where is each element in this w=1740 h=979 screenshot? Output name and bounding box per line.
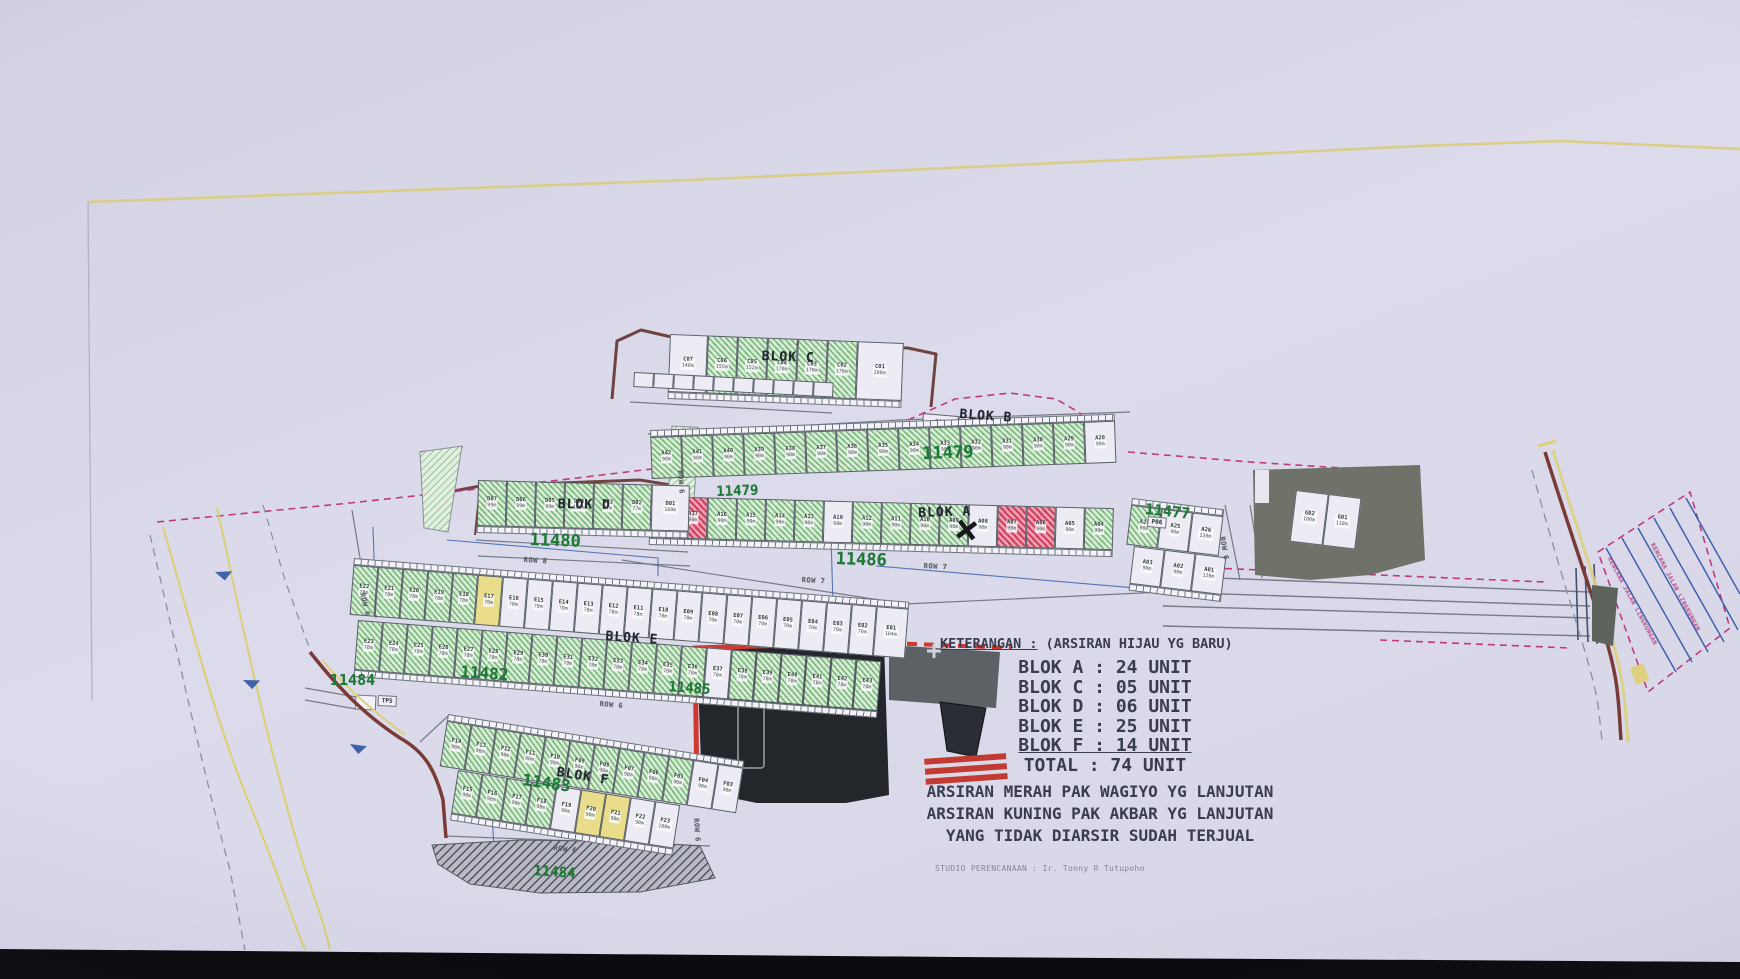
unit-label: D0799m — [486, 498, 498, 510]
unit-A04: A0490m — [1084, 507, 1114, 550]
parcel-number: 11484 — [330, 671, 375, 689]
unit-label: D01160m — [663, 502, 677, 514]
legend-note-line: YANG TIDAK DIARSIR SUDAH TERJUAL — [860, 825, 1340, 847]
unit-label: A1690m — [716, 513, 728, 525]
unit-label: F1790m — [510, 795, 524, 808]
unit-label: E3678m — [686, 665, 699, 677]
unit-A37: A3790m — [805, 431, 837, 474]
unit-label: E1478m — [557, 600, 570, 612]
unit-label: C05152m — [745, 360, 759, 372]
legend-row: BLOK C : 05 UNIT — [940, 678, 1270, 698]
unit-label: E3478m — [636, 661, 649, 673]
unit-label: C02170m — [835, 364, 849, 376]
unit-label: A0290m — [1171, 564, 1184, 577]
unit-label: C07148m — [681, 358, 695, 370]
unit-label: F1390m — [474, 743, 488, 756]
legend-title-keterangan: KETERANGAN : — [940, 636, 1038, 652]
unit-label: F2290m — [633, 815, 647, 828]
parcel-number: 11479 — [716, 483, 759, 500]
unit-label: A01120m — [1201, 568, 1216, 581]
unit-label: E3878m — [736, 669, 749, 681]
unit-label: E0570m — [781, 618, 794, 630]
unit-A31: A3190m — [991, 424, 1023, 467]
row-label: ROW 7 — [802, 576, 826, 585]
unit-label: F1590m — [460, 787, 474, 800]
unit-cell — [813, 381, 834, 397]
legend-rows: BLOK A : 24 UNITBLOK C : 05 UNITBLOK D :… — [940, 658, 1270, 775]
unit-label: A4190m — [691, 450, 703, 462]
unit-A02: A0290m — [1160, 550, 1195, 591]
unit-label: E3378m — [611, 659, 624, 671]
unit-A01: A01120m — [1191, 554, 1226, 595]
unit-A38: A3890m — [774, 432, 806, 475]
unit-E43: E4378m — [853, 659, 882, 711]
unit-label: A1490m — [774, 515, 786, 527]
row-label: ROW 8 — [524, 556, 548, 565]
unit-label: A3790m — [815, 446, 827, 458]
unit-A05: A0590m — [1055, 507, 1085, 550]
unit-label: F1690m — [485, 791, 499, 804]
unit-cell — [733, 377, 754, 393]
yellow-boundary-line — [88, 141, 1740, 202]
unit-label: E1378m — [582, 602, 595, 614]
unit-A14: A1490m — [765, 499, 795, 542]
legend-row: BLOK E : 25 UNIT — [940, 717, 1270, 737]
unit-label: A0790m — [1006, 521, 1018, 533]
strip-g-units: G02100mG01118m — [1290, 490, 1362, 550]
unit-A03: A0390m — [1129, 546, 1164, 587]
unit-label: A1590m — [745, 514, 757, 526]
unit-label: D0277m — [631, 501, 643, 513]
unit-label: A3190m — [1001, 440, 1013, 452]
parcel-number: 11482 — [460, 662, 509, 684]
unit-label: A1290m — [861, 517, 873, 529]
row-label: ROW 6 — [676, 470, 686, 494]
unit-label: A2890m — [1094, 436, 1106, 448]
unit-label: E1978m — [432, 591, 445, 603]
unit-D07: D0799m — [477, 480, 507, 527]
unit-label: E2578m — [412, 644, 425, 656]
unit-label: G02100m — [1302, 511, 1317, 524]
unit-label: E2478m — [387, 642, 400, 654]
legend-title: KETERANGAN : (ARSIRAN HIJAU YG BARU) — [940, 636, 1270, 652]
unit-label: F0690m — [646, 770, 660, 783]
unit-label: E0970m — [682, 610, 695, 622]
unit-A13: A1390m — [794, 500, 824, 543]
unit-label: A26120m — [1198, 528, 1213, 541]
unit-label: E1278m — [607, 604, 620, 616]
parcel-number: 11479 — [922, 442, 974, 464]
unit-label: A3890m — [784, 447, 796, 459]
block-label: BLOK D — [558, 497, 611, 513]
unit-D02: D0277m — [622, 484, 652, 531]
unit-label: E3978m — [761, 671, 774, 683]
unit-label: E1578m — [532, 598, 545, 610]
planner-credit: STUDIO PERENCANAAN : Ir. Tonny R Tutupoh… — [935, 864, 1145, 873]
strip-blok-c: C07148mC06155mC05152mC04170mC03170mC0217… — [668, 334, 904, 408]
parcel-number: 11486 — [835, 549, 887, 571]
parcel-number: 11484 — [533, 863, 576, 882]
unit-label: F0490m — [696, 778, 710, 791]
unit-label: A2590m — [1168, 524, 1181, 537]
unit-A11: A1190m — [881, 502, 911, 545]
legend-title-note: (ARSIRAN HIJAU YG BARU) — [1038, 636, 1233, 652]
unit-A28: A2890m — [1084, 421, 1116, 464]
unit-label: E4378m — [861, 679, 874, 691]
unit-label: E3178m — [561, 655, 574, 667]
unit-label: A1190m — [890, 518, 902, 530]
unit-A15: A1590m — [736, 498, 766, 541]
unit-A16: A1690m — [707, 498, 737, 541]
unit-label: A4290m — [660, 452, 672, 464]
unit-label: A3490m — [908, 443, 920, 455]
unit-label: A1960m — [832, 516, 844, 528]
unit-label: E2378m — [362, 640, 375, 652]
legend: KETERANGAN : (ARSIRAN HIJAU YG BARU) BLO… — [940, 636, 1270, 775]
unit-cell — [773, 379, 794, 395]
unit-label: F2090m — [584, 807, 598, 820]
unit-A36: A3690m — [836, 429, 868, 472]
unit-label: E2678m — [437, 646, 450, 658]
unit-label: F0390m — [720, 782, 734, 795]
unit-label: A0390m — [1140, 560, 1153, 573]
unit-label: A0590m — [1064, 522, 1076, 534]
unit-label: E2978m — [512, 652, 525, 664]
unit-E01: E01104m — [873, 606, 909, 658]
unit-label: E0370m — [831, 622, 844, 634]
legend-row: TOTAL : 74 UNIT — [940, 756, 1270, 776]
legend-notes: ARSIRAN MERAH PAK WAGIYO YG LANJUTANARSI… — [860, 781, 1340, 847]
unit-label: E4178m — [811, 675, 824, 687]
unit-A12: A1290m — [852, 501, 882, 544]
unit-label: A1390m — [803, 515, 815, 527]
unit-label: F1290m — [498, 747, 512, 760]
unit-label: A3090m — [1032, 439, 1044, 451]
unit-label: E0870m — [706, 612, 719, 624]
unit-label: E0670m — [756, 616, 769, 628]
unit-label: E1778m — [482, 595, 495, 607]
block-label: BLOK C — [761, 349, 814, 366]
unit-label: F2190m — [608, 811, 622, 824]
unit-cell — [693, 375, 714, 391]
unit-label: F1990m — [559, 803, 573, 816]
unit-label: E0470m — [806, 620, 819, 632]
unit-A30: A3090m — [1022, 423, 1054, 466]
unit-label: E1678m — [507, 597, 520, 609]
unit-label: C01200m — [872, 365, 886, 377]
unit-label: E3278m — [586, 657, 599, 669]
unit-label: F0590m — [671, 774, 685, 787]
unit-cell — [673, 374, 694, 390]
unit-A39: A3990m — [743, 433, 775, 476]
unit-label: E2878m — [487, 650, 500, 662]
unit-G01: G01118m — [1322, 494, 1361, 550]
unit-A26: A26120m — [1188, 513, 1224, 556]
unit-label: F1190m — [523, 751, 537, 764]
site-plan-photo: C07148mC06155mC05152mC04170mC03170mC0217… — [0, 0, 1740, 979]
unit-A06: A0690m — [1026, 506, 1056, 549]
unit-cell — [633, 372, 654, 388]
small-box-label: P06 — [1147, 516, 1167, 529]
unit-label: E4078m — [786, 673, 799, 685]
unit-label: E3078m — [537, 654, 550, 666]
unit-C01: C01200m — [856, 341, 904, 401]
unit-label: A4090m — [722, 449, 734, 461]
unit-A41: A4190m — [681, 435, 713, 478]
row-label: ROW 7 — [924, 562, 948, 571]
unit-label: E0770m — [731, 614, 744, 626]
unit-label: E2178m — [382, 587, 395, 599]
legend-note-line: ARSIRAN MERAH PAK WAGIYO YG LANJUTAN — [860, 781, 1340, 803]
unit-label: E3778m — [711, 667, 724, 679]
unit-cell — [793, 380, 814, 396]
legend-row: BLOK F : 14 UNIT — [940, 736, 1270, 756]
unit-label: E3578m — [661, 663, 674, 675]
legend-row: BLOK D : 06 UNIT — [940, 697, 1270, 717]
unit-label: E0270m — [856, 624, 869, 636]
parcel-number: 11485 — [668, 679, 711, 698]
unit-label: A3990m — [753, 448, 765, 460]
unit-label: F1490m — [449, 739, 463, 752]
unit-label: E1178m — [632, 606, 645, 618]
unit-cell — [753, 378, 774, 394]
small-box-label: TPS — [377, 695, 396, 707]
legend-row: BLOK A : 24 UNIT — [940, 658, 1270, 678]
unit-label: E1070m — [657, 608, 670, 620]
unit-label: A3690m — [846, 445, 858, 457]
parcel-number: 11480 — [529, 530, 581, 552]
unit-A35: A3590m — [867, 428, 899, 471]
unit-label: E1878m — [457, 593, 470, 605]
unit-label: D0599m — [544, 499, 556, 511]
row-label: ROW 6 — [692, 818, 702, 842]
unit-label: A2990m — [1063, 438, 1075, 450]
unit-label: F23100m — [657, 818, 673, 831]
unit-label: E01104m — [883, 626, 898, 638]
unit-label: G01118m — [1334, 515, 1349, 528]
unit-label: F0790m — [622, 766, 636, 779]
unit-label: E4278m — [836, 677, 849, 689]
unit-cell — [653, 373, 674, 389]
unit-label: E2078m — [407, 589, 420, 601]
legend-note-line: ARSIRAN KUNING PAK AKBAR YG LANJUTAN — [860, 803, 1340, 825]
unit-A40: A4090m — [712, 434, 744, 477]
unit-D06: D0699m — [506, 481, 536, 528]
unit-label: D0699m — [515, 498, 527, 510]
unit-label: F1890m — [534, 799, 548, 812]
unit-label: A3590m — [877, 444, 889, 456]
unit-A07: A0790m — [997, 505, 1027, 548]
unit-label: C06155m — [715, 359, 729, 371]
unit-A29: A2990m — [1053, 422, 1085, 465]
unit-cell — [713, 376, 734, 392]
unit-label: A0490m — [1093, 523, 1105, 535]
unit-label: E2778m — [462, 648, 475, 660]
unit-A19: A1960m — [823, 501, 853, 544]
unit-label: A0690m — [1035, 521, 1047, 533]
